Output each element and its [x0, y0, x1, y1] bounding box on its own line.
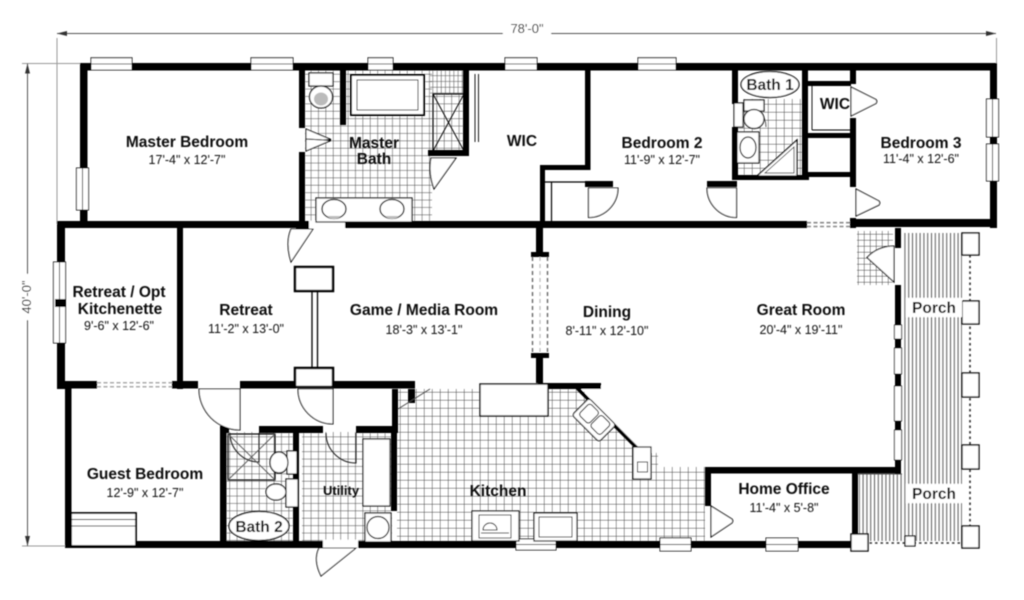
svg-text:Dining: Dining	[583, 304, 631, 321]
svg-text:11'-4" x 5'-8": 11'-4" x 5'-8"	[749, 501, 818, 515]
svg-text:Master: Master	[349, 135, 399, 152]
svg-text:Bath 1: Bath 1	[746, 77, 794, 94]
svg-text:8'-11" x 12'-10": 8'-11" x 12'-10"	[566, 324, 649, 338]
svg-text:Utility: Utility	[323, 483, 360, 498]
svg-text:Retreat: Retreat	[219, 302, 272, 319]
svg-text:Kitchenette: Kitchenette	[78, 301, 163, 318]
svg-text:Bedroom 3: Bedroom 3	[881, 135, 962, 152]
svg-text:Bedroom 2: Bedroom 2	[622, 135, 703, 152]
svg-text:11'-4" x 12'-6": 11'-4" x 12'-6"	[883, 152, 959, 166]
svg-text:Porch: Porch	[912, 300, 956, 317]
svg-text:78'-0": 78'-0"	[510, 21, 544, 36]
svg-text:40'-0": 40'-0"	[19, 280, 34, 314]
svg-text:Bath 2: Bath 2	[235, 519, 282, 536]
svg-text:Great Room: Great Room	[757, 302, 846, 319]
svg-text:Home Office: Home Office	[738, 481, 830, 498]
svg-text:11'-2" x 13'-0": 11'-2" x 13'-0"	[208, 322, 284, 336]
svg-text:Master Bedroom: Master Bedroom	[126, 134, 248, 151]
svg-text:18'-3" x 13'-1": 18'-3" x 13'-1"	[386, 323, 463, 337]
svg-text:Bath: Bath	[357, 151, 391, 168]
svg-text:9'-6" x 12'-6": 9'-6" x 12'-6"	[84, 319, 154, 333]
svg-text:12'-9" x 12'-7": 12'-9" x 12'-7"	[107, 486, 184, 500]
svg-text:Porch: Porch	[912, 486, 956, 503]
svg-text:Game / Media Room: Game / Media Room	[350, 302, 498, 319]
svg-text:WIC: WIC	[820, 96, 850, 113]
svg-text:20'-4" x 19'-11": 20'-4" x 19'-11"	[760, 323, 843, 337]
svg-text:11'-9" x 12'-7": 11'-9" x 12'-7"	[624, 153, 700, 167]
svg-text:17'-4" x 12'-7": 17'-4" x 12'-7"	[149, 153, 226, 167]
svg-text:WIC: WIC	[507, 133, 537, 150]
svg-text:Retreat / Opt: Retreat / Opt	[72, 284, 165, 301]
svg-text:Guest Bedroom: Guest Bedroom	[87, 466, 203, 483]
svg-text:Kitchen: Kitchen	[470, 483, 527, 500]
